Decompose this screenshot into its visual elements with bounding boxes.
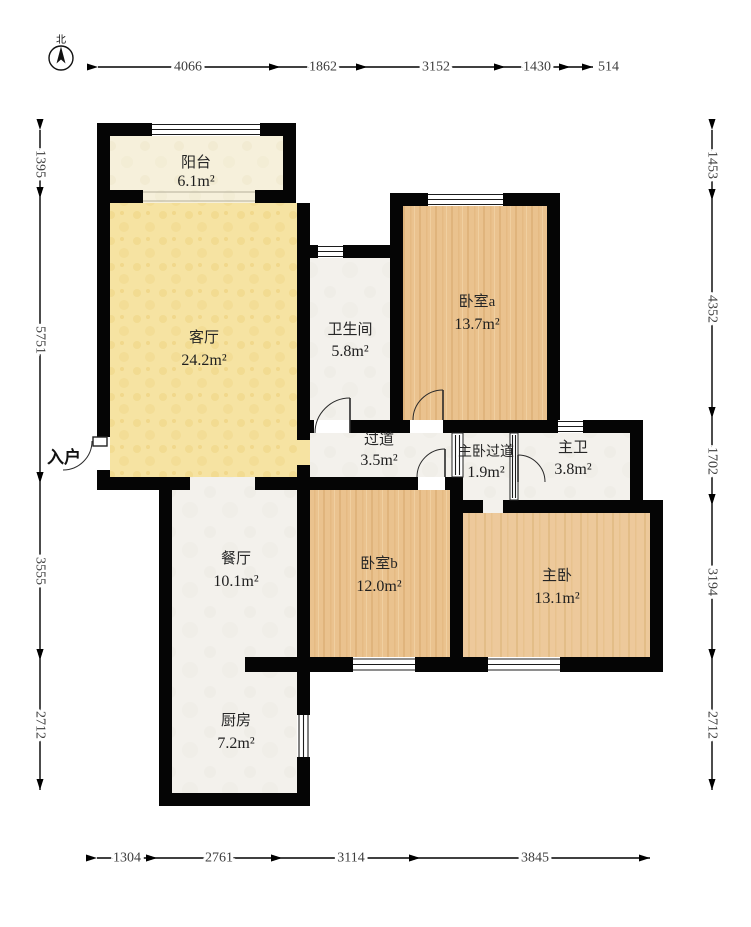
hallway-master-opening [483, 500, 503, 513]
wall [255, 477, 418, 490]
room-label-master-hallway: 主卧过道 [458, 444, 514, 460]
floor-plan-svg: 阳台 6.1m² 客厅 24.2m² 卫生间 5.8m² 卧室a 13.7m² … [0, 0, 751, 927]
room-label-master-bedroom: 主卧 [542, 567, 572, 584]
room-label-balcony: 阳台 [181, 154, 211, 171]
wall [547, 193, 560, 433]
window-bathroom [318, 245, 343, 258]
room-area-dining: 10.1m² [213, 573, 258, 590]
dimensions-bottom: 1304 2761 3114 3845 [97, 851, 650, 866]
dim-top-3: 3152 [422, 60, 450, 75]
dim-bottom-4: 3845 [521, 851, 549, 866]
wall [560, 657, 663, 672]
compass-north-label: 北 [56, 34, 66, 46]
dim-top-2: 1862 [309, 60, 337, 75]
living-dining-opening [190, 477, 255, 490]
dim-right-4: 3194 [705, 568, 720, 596]
room-bathroom-floor [310, 258, 390, 420]
room-area-balcony: 6.1m² [177, 173, 214, 190]
dimensions-right: 1453 4352 1702 3194 2712 [705, 130, 720, 790]
window-bedroom-a [428, 193, 503, 206]
wall [159, 490, 172, 806]
wall [297, 477, 310, 715]
dim-bottom-3: 3114 [337, 851, 364, 866]
window-bedroom-b [353, 657, 415, 672]
window-balcony [152, 123, 260, 136]
window-master-bath [558, 420, 583, 433]
living-hallway-opening [297, 440, 310, 465]
wall [450, 477, 463, 657]
dim-left-3: 3555 [33, 557, 48, 585]
wall [297, 465, 310, 477]
room-area-living: 24.2m² [181, 352, 226, 369]
floor-plan-page: 阳台 6.1m² 客厅 24.2m² 卫生间 5.8m² 卧室a 13.7m² … [0, 0, 751, 927]
room-label-bedroom-b: 卧室b [360, 555, 398, 572]
wall [630, 420, 643, 513]
dim-top-4: 1430 [523, 60, 551, 75]
wall [255, 190, 296, 203]
dim-left-1: 1395 [33, 150, 48, 178]
room-area-kitchen: 7.2m² [217, 735, 254, 752]
room-label-dining: 餐厅 [221, 550, 251, 567]
wall [650, 500, 663, 672]
compass-needle [57, 47, 66, 64]
room-label-living: 客厅 [189, 329, 219, 346]
room-area-master-bath: 3.8m² [554, 461, 591, 478]
dim-right-5: 2712 [705, 711, 720, 739]
room-area-master-bedroom: 13.1m² [534, 590, 579, 607]
compass-icon: 北 [49, 34, 73, 70]
wall [97, 477, 190, 490]
room-label-master-bath: 主卫 [558, 439, 588, 456]
room-master-bedroom-floor [463, 513, 650, 657]
room-label-kitchen: 厨房 [221, 712, 251, 729]
room-area-bedroom-b: 12.0m² [356, 578, 401, 595]
dim-right-3: 1702 [705, 447, 720, 475]
room-label-hallway: 过道 [364, 431, 394, 448]
room-label-bedroom-a: 卧室a [459, 293, 496, 310]
dim-bottom-1: 1304 [113, 851, 141, 866]
kitchen-sliding-door [297, 715, 310, 757]
wall [297, 203, 310, 440]
wall [297, 245, 390, 258]
dim-right-1: 1453 [705, 151, 720, 179]
room-area-bathroom: 5.8m² [331, 343, 368, 360]
room-bedroom-a-floor [403, 206, 547, 420]
wall [297, 420, 314, 433]
wall [159, 793, 310, 806]
dim-top-5: 514 [598, 60, 619, 75]
wall [443, 420, 643, 433]
dim-top-1: 4066 [174, 60, 202, 75]
room-area-master-hallway: 1.9m² [467, 464, 504, 481]
room-bedroom-b-floor [310, 490, 450, 657]
entrance-label: 入户 [47, 447, 81, 467]
dimensions-top: 4066 1862 3152 1430 514 [98, 60, 619, 75]
wall [245, 657, 353, 672]
dim-left-2: 5751 [33, 326, 48, 354]
room-label-bathroom: 卫生间 [327, 321, 372, 338]
dim-left-4: 2712 [33, 711, 48, 739]
wall [390, 193, 403, 433]
wall [415, 657, 488, 672]
room-area-bedroom-a: 13.7m² [454, 316, 499, 333]
wall [110, 190, 143, 203]
dimensions-left: 1395 5751 3555 2712 [33, 130, 48, 790]
wall [97, 123, 110, 437]
room-area-hallway: 3.5m² [360, 452, 397, 469]
dim-right-2: 4352 [705, 295, 720, 323]
window-master-bedroom [488, 657, 560, 672]
dim-bottom-2: 2761 [205, 851, 233, 866]
